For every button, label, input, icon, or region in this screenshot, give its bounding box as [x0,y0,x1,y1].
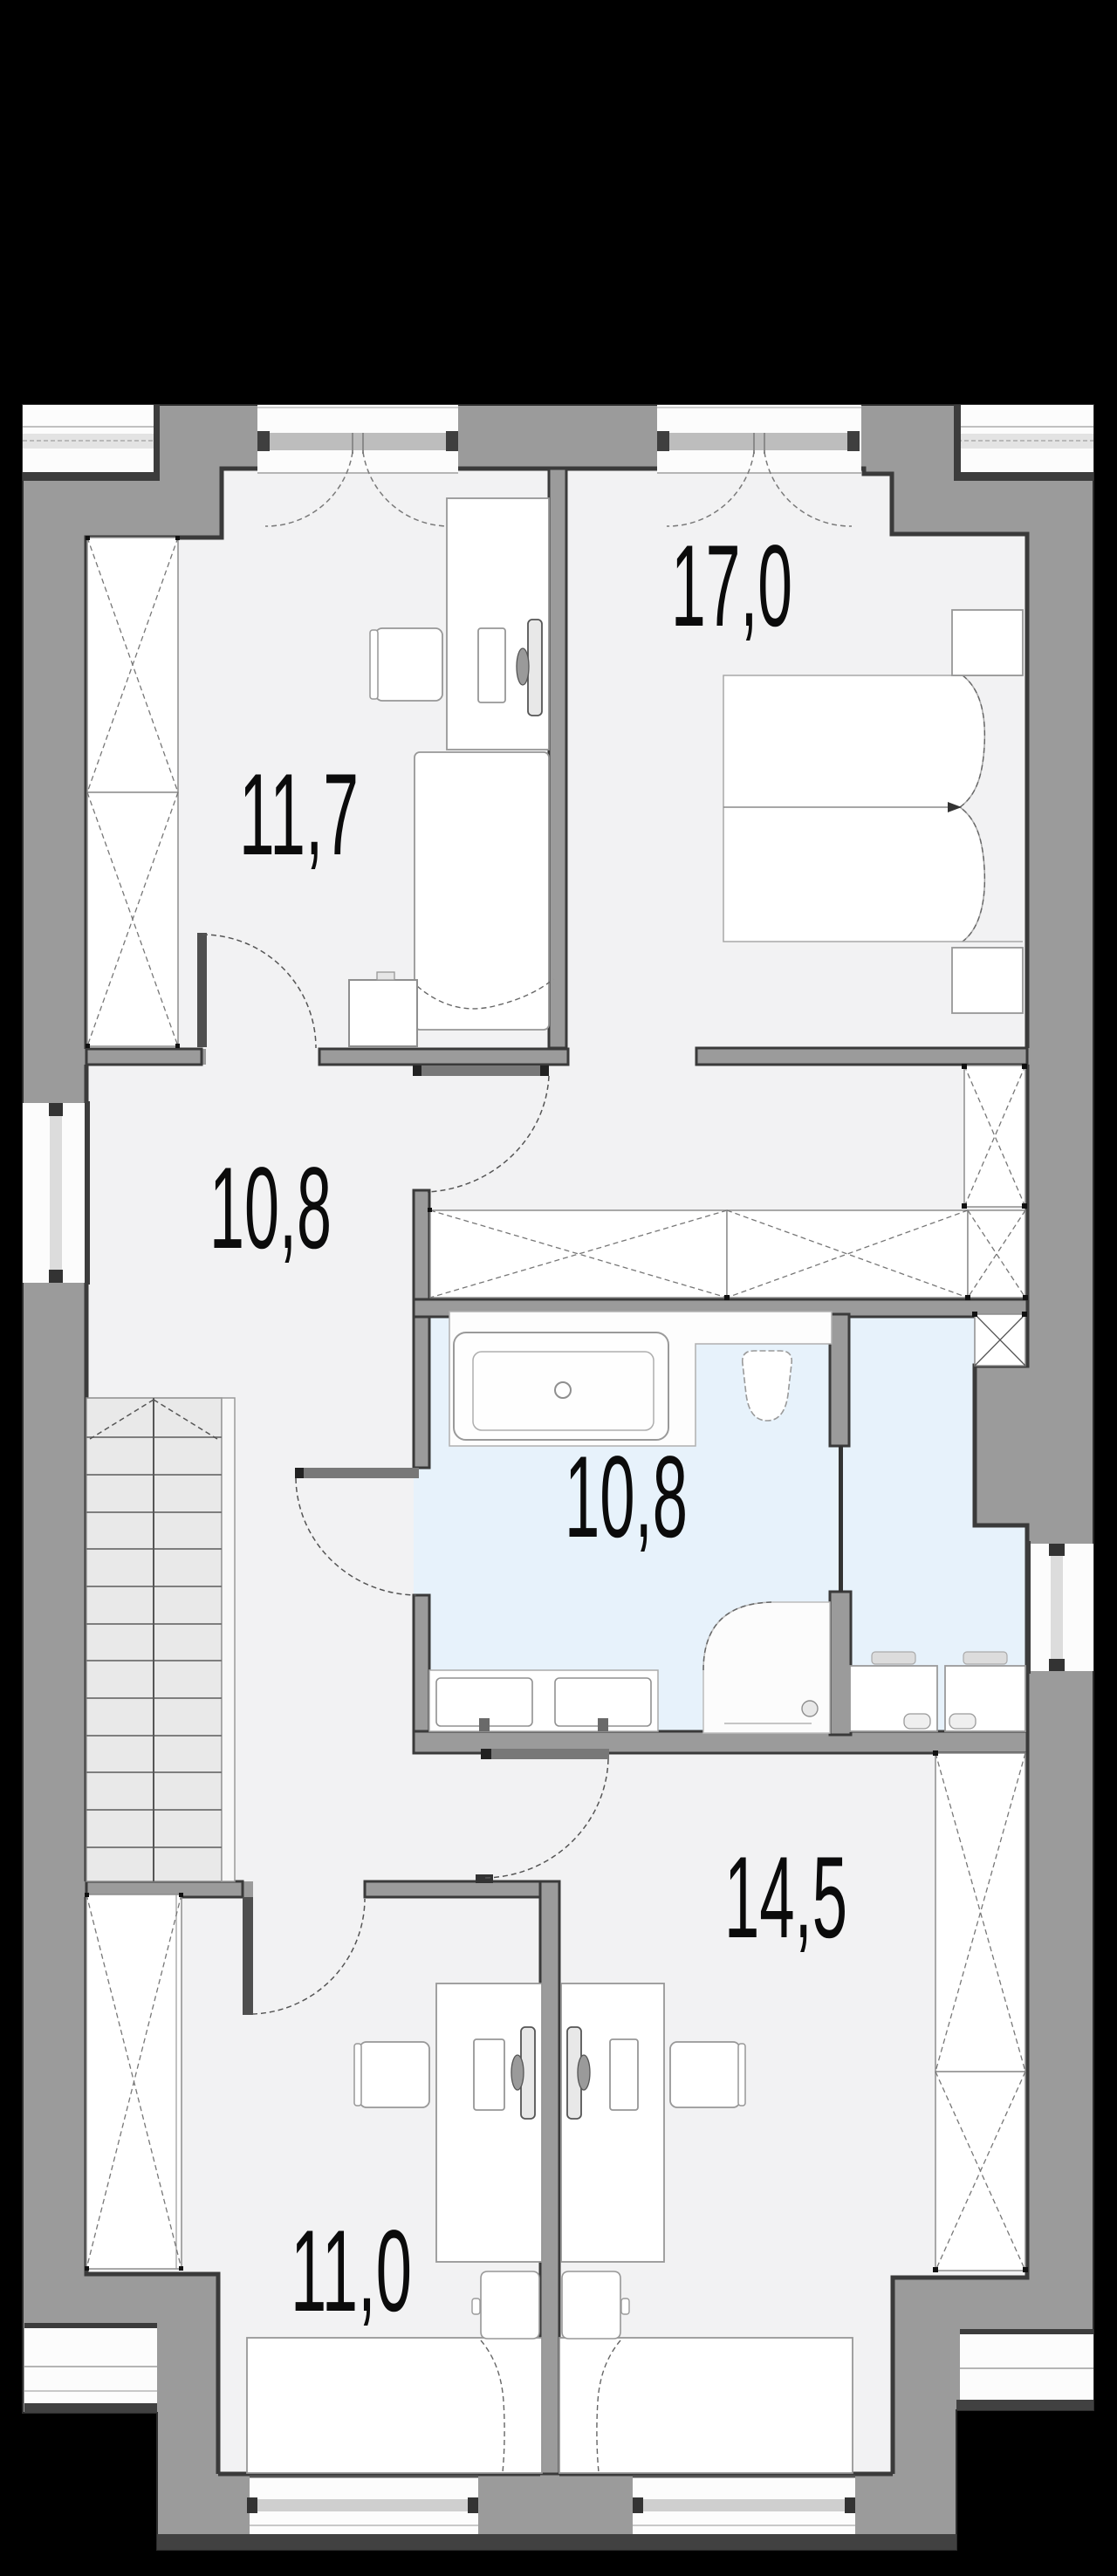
svg-text:17,0: 17,0 [671,522,792,651]
svg-text:11,7: 11,7 [239,750,359,880]
svg-text:10,8: 10,8 [565,1433,688,1562]
svg-text:14,5: 14,5 [724,1833,847,1963]
svg-text:11,0: 11,0 [291,2207,412,2336]
svg-text:10,8: 10,8 [209,1144,332,1273]
